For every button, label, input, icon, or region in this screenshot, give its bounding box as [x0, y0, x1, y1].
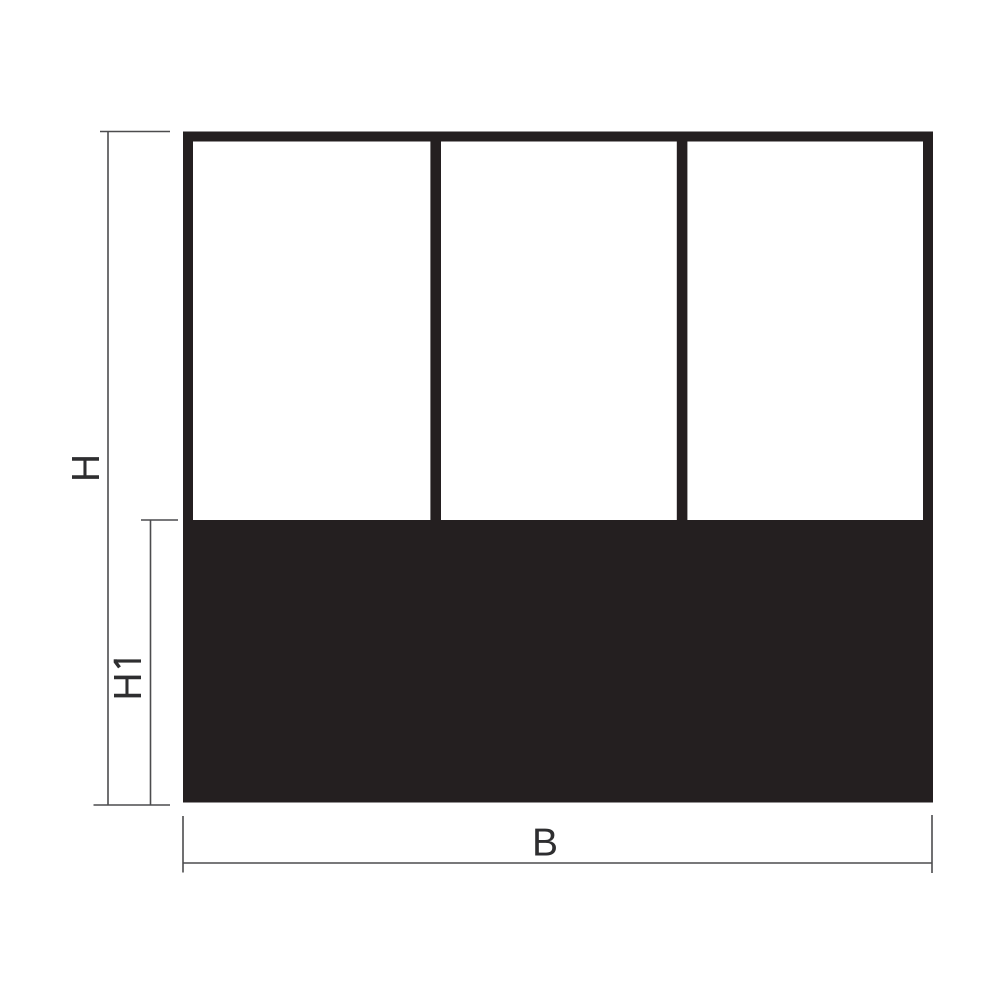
svg-text:H: H	[107, 672, 150, 700]
svg-text:B: B	[532, 822, 558, 865]
svg-text:H: H	[65, 454, 108, 482]
